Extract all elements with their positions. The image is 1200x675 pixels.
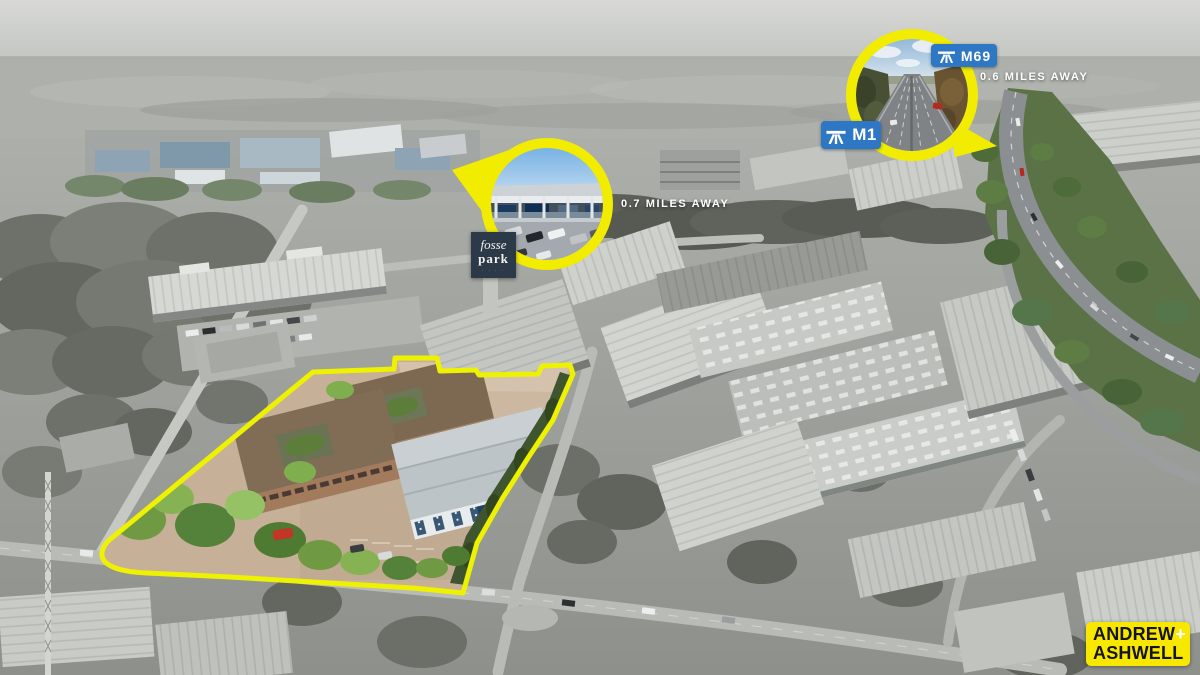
aerial-photo-stage: 0.7 MILES AWAY 0.6 MILES AWAY M69 M1 fos… — [0, 0, 1200, 675]
m69-sign-label: M69 — [961, 48, 991, 64]
andrew-ashwell-logo: ANDREW+ ASHWELL — [1086, 622, 1190, 666]
sky — [0, 0, 1200, 62]
motorway-distance-label: 0.6 MILES AWAY — [980, 71, 1088, 83]
logo-plus: + — [1175, 624, 1186, 644]
tower-crane — [45, 472, 51, 675]
m1-motorway-sign: M1 — [821, 121, 881, 149]
motorway-symbol-icon — [937, 48, 956, 63]
fosse-park-badge: fosse park · · · · — [471, 232, 516, 278]
fosse-badge-line1: fosse — [471, 238, 516, 251]
sign-tower — [483, 276, 498, 314]
m1-sign-label: M1 — [852, 125, 877, 145]
m69-motorway-sign: M69 — [931, 44, 997, 67]
distant-business-park — [65, 124, 480, 203]
logo-line-2: ASHWELL — [1093, 644, 1190, 663]
fosse-park-distance-label: 0.7 MILES AWAY — [621, 198, 729, 210]
motorway-symbol-icon — [825, 127, 847, 144]
logo-line-1: ANDREW+ — [1093, 625, 1190, 644]
fosse-badge-line2: park — [471, 252, 516, 265]
fosse-badge-tagline: · · · · — [471, 269, 516, 273]
aerial-scene — [0, 0, 1200, 675]
